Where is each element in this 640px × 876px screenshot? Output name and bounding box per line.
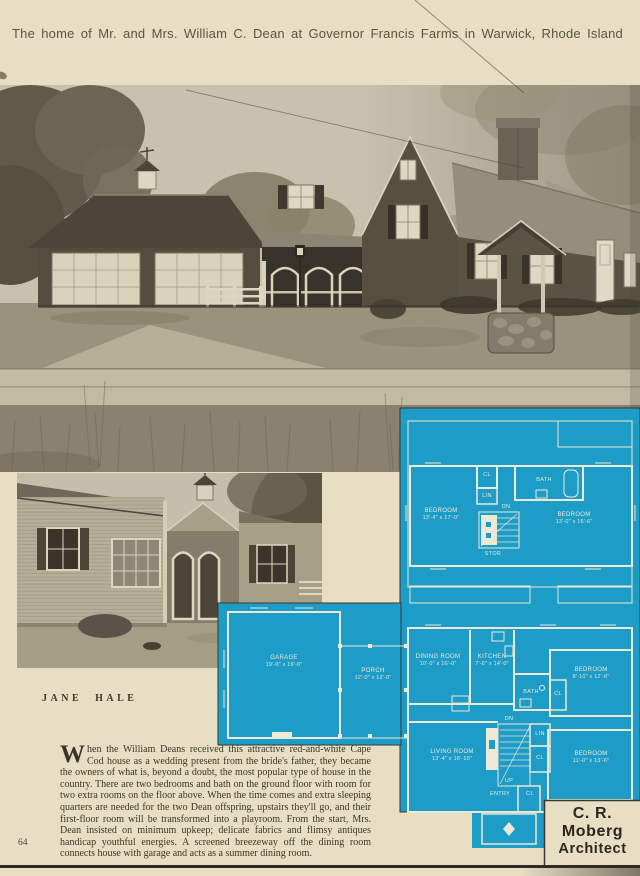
plan-room-living: LIVING ROOM13'-4" x 16'-10"	[430, 749, 473, 763]
page-number: 64	[18, 838, 28, 848]
drop-cap: W	[60, 745, 85, 765]
architect-name: C. R. Moberg	[545, 805, 640, 841]
plan-label-lin: LIN	[482, 493, 491, 499]
main-photo	[0, 85, 640, 472]
plan-label-lin-1f: LIN	[535, 731, 544, 737]
plan-label-dn-1f: DN	[505, 716, 514, 722]
plan-room-bedroom-right: BEDROOM13'-0" x 16'-6"	[556, 512, 593, 526]
plan-room-bedroom-left: BEDROOM13'-4" x 17'-0"	[423, 508, 460, 522]
plan-room-bedroom-small: BEDROOM8'-10" x 12'-8"	[573, 667, 610, 681]
plan-label-bath-1f: BATH	[523, 689, 538, 695]
plan-label-bath: BATH	[536, 477, 551, 483]
page-corner-shade	[520, 868, 640, 876]
plan-label-stor: STOR	[485, 551, 501, 557]
print-smudge	[0, 70, 8, 81]
article-body: hen the William Deans received this attr…	[60, 744, 371, 859]
plan-label-cl-stair: CL	[536, 755, 544, 761]
architect-title: Architect	[545, 841, 640, 858]
architect-credit: C. R. Moberg Architect	[545, 805, 640, 858]
plan-label-up: UP	[505, 778, 513, 784]
plan-label-dn: DN	[502, 504, 511, 510]
plan-label-cl-entry: CL	[526, 791, 534, 797]
plan-room-porch: PORCH12'-0" x 12'-0"	[355, 668, 392, 682]
plan-room-bedroom-corner: BEDROOM11'-0" x 13'-6"	[573, 751, 609, 765]
secondary-photo-illustration	[17, 473, 322, 668]
plan-label-entry: ENTRY	[490, 791, 510, 797]
page-title: The home of Mr. and Mrs. William C. Dean…	[12, 26, 630, 41]
magazine-page: The home of Mr. and Mrs. William C. Dean…	[0, 0, 640, 876]
plan-label-cl-bath: CL	[554, 691, 562, 697]
article-text: When the William Deans received this att…	[60, 744, 371, 860]
plan-room-dining: DINING ROOM10'-0" x 16'-0"	[416, 654, 461, 668]
plan-label-cl: CL	[483, 472, 491, 478]
secondary-photo	[17, 473, 322, 668]
main-photo-illustration	[0, 85, 640, 472]
plan-room-garage: GARAGE19'-0" x 19'-0"	[266, 655, 303, 669]
plan-label-cl-side: CL	[488, 766, 496, 772]
byline: JANE HALE	[42, 693, 137, 704]
plan-room-kitchen: KITCHEN7'-6" x 14'-0"	[475, 654, 509, 668]
